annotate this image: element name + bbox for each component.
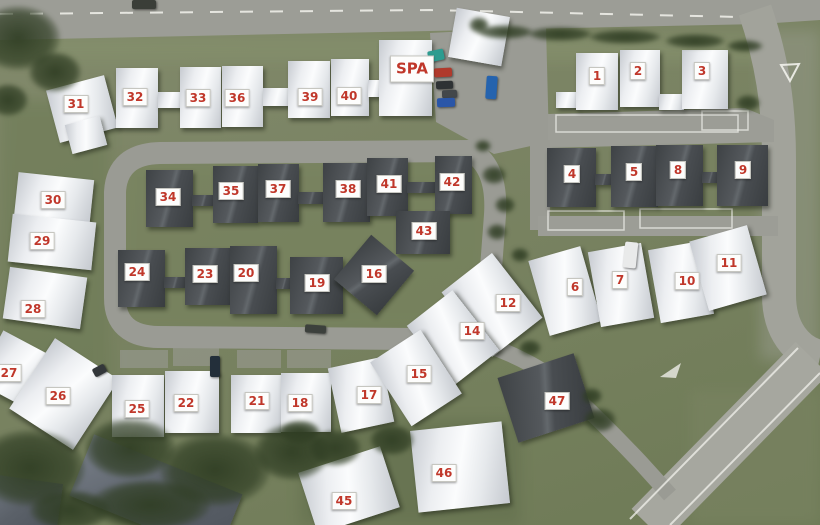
car	[485, 76, 498, 100]
unit-label-32: 32	[123, 88, 148, 106]
tree	[495, 197, 515, 213]
unit-label-7: 7	[612, 271, 628, 289]
unit-label-10: 10	[675, 272, 700, 290]
unit-label-38: 38	[336, 180, 361, 198]
unit-label-22: 22	[174, 394, 199, 412]
building-roof-dark	[298, 192, 325, 204]
unit-label-19: 19	[305, 274, 330, 292]
unit-label-12: 12	[496, 294, 521, 312]
tree	[519, 340, 541, 356]
tree	[90, 480, 210, 525]
unit-label-25: 25	[125, 400, 150, 418]
unit-label-3: 3	[694, 62, 710, 80]
tree	[477, 25, 533, 39]
tree	[475, 140, 491, 152]
tree	[528, 27, 592, 41]
building-roof-white	[3, 267, 87, 329]
tree	[280, 420, 320, 444]
unit-label-27: 27	[0, 364, 21, 382]
unit-label-46: 46	[432, 464, 457, 482]
unit-label-33: 33	[186, 89, 211, 107]
unit-label-2: 2	[630, 62, 646, 80]
tree	[30, 490, 110, 525]
unit-label-42: 42	[440, 173, 465, 191]
unit-label-34: 34	[156, 188, 181, 206]
car	[436, 81, 453, 90]
aerial-site-map: 313233363940SPA1233034353738414245892943…	[0, 0, 820, 525]
unit-label-23: 23	[193, 265, 218, 283]
unit-label-spa: SPA	[390, 56, 434, 83]
tree	[584, 408, 616, 432]
unit-label-6: 6	[567, 278, 583, 296]
unit-label-17: 17	[357, 386, 382, 404]
tree	[727, 40, 763, 52]
unit-label-45: 45	[332, 492, 357, 510]
tree	[736, 95, 760, 111]
building-roof-dark	[407, 182, 436, 193]
unit-label-43: 43	[412, 222, 437, 240]
building-roof-dark	[192, 195, 215, 206]
tree	[582, 388, 602, 404]
tree	[29, 52, 81, 92]
tree	[482, 166, 506, 184]
unit-label-11: 11	[717, 254, 742, 272]
tree	[487, 224, 507, 240]
unit-label-28: 28	[21, 300, 46, 318]
unit-label-37: 37	[266, 180, 291, 198]
building-roof-white	[263, 88, 291, 106]
unit-label-15: 15	[407, 365, 432, 383]
building-roof-dark	[164, 277, 186, 288]
unit-label-30: 30	[41, 191, 66, 209]
tree	[511, 248, 529, 262]
driveways	[120, 348, 331, 368]
unit-label-47: 47	[545, 392, 570, 410]
unit-label-40: 40	[337, 87, 362, 105]
unit-label-20: 20	[234, 264, 259, 282]
unit-label-9: 9	[735, 161, 751, 179]
building-roof-white	[410, 421, 510, 512]
building-roof-white	[659, 94, 684, 110]
tree	[370, 425, 414, 455]
unit-label-5: 5	[626, 163, 642, 181]
street-north	[548, 108, 774, 148]
car	[210, 356, 220, 377]
building-roof-white	[556, 92, 578, 108]
unit-label-18: 18	[288, 394, 313, 412]
unit-label-31: 31	[64, 95, 89, 113]
unit-label-29: 29	[30, 232, 55, 250]
unit-label-41: 41	[377, 175, 402, 193]
car	[132, 0, 156, 9]
diagonal-road	[648, 358, 812, 525]
unit-label-1: 1	[589, 67, 605, 85]
car	[437, 98, 455, 108]
tree	[589, 30, 661, 44]
unit-label-14: 14	[460, 322, 485, 340]
tree	[665, 34, 725, 48]
unit-label-8: 8	[670, 161, 686, 179]
unit-label-4: 4	[564, 165, 580, 183]
unit-label-26: 26	[46, 387, 71, 405]
car	[623, 241, 639, 268]
unit-label-36: 36	[225, 89, 250, 107]
unit-label-35: 35	[219, 182, 244, 200]
unit-label-21: 21	[245, 392, 270, 410]
car	[434, 68, 452, 78]
unit-label-16: 16	[362, 265, 387, 283]
unit-label-24: 24	[125, 263, 150, 281]
unit-label-39: 39	[298, 88, 323, 106]
car	[305, 324, 327, 333]
